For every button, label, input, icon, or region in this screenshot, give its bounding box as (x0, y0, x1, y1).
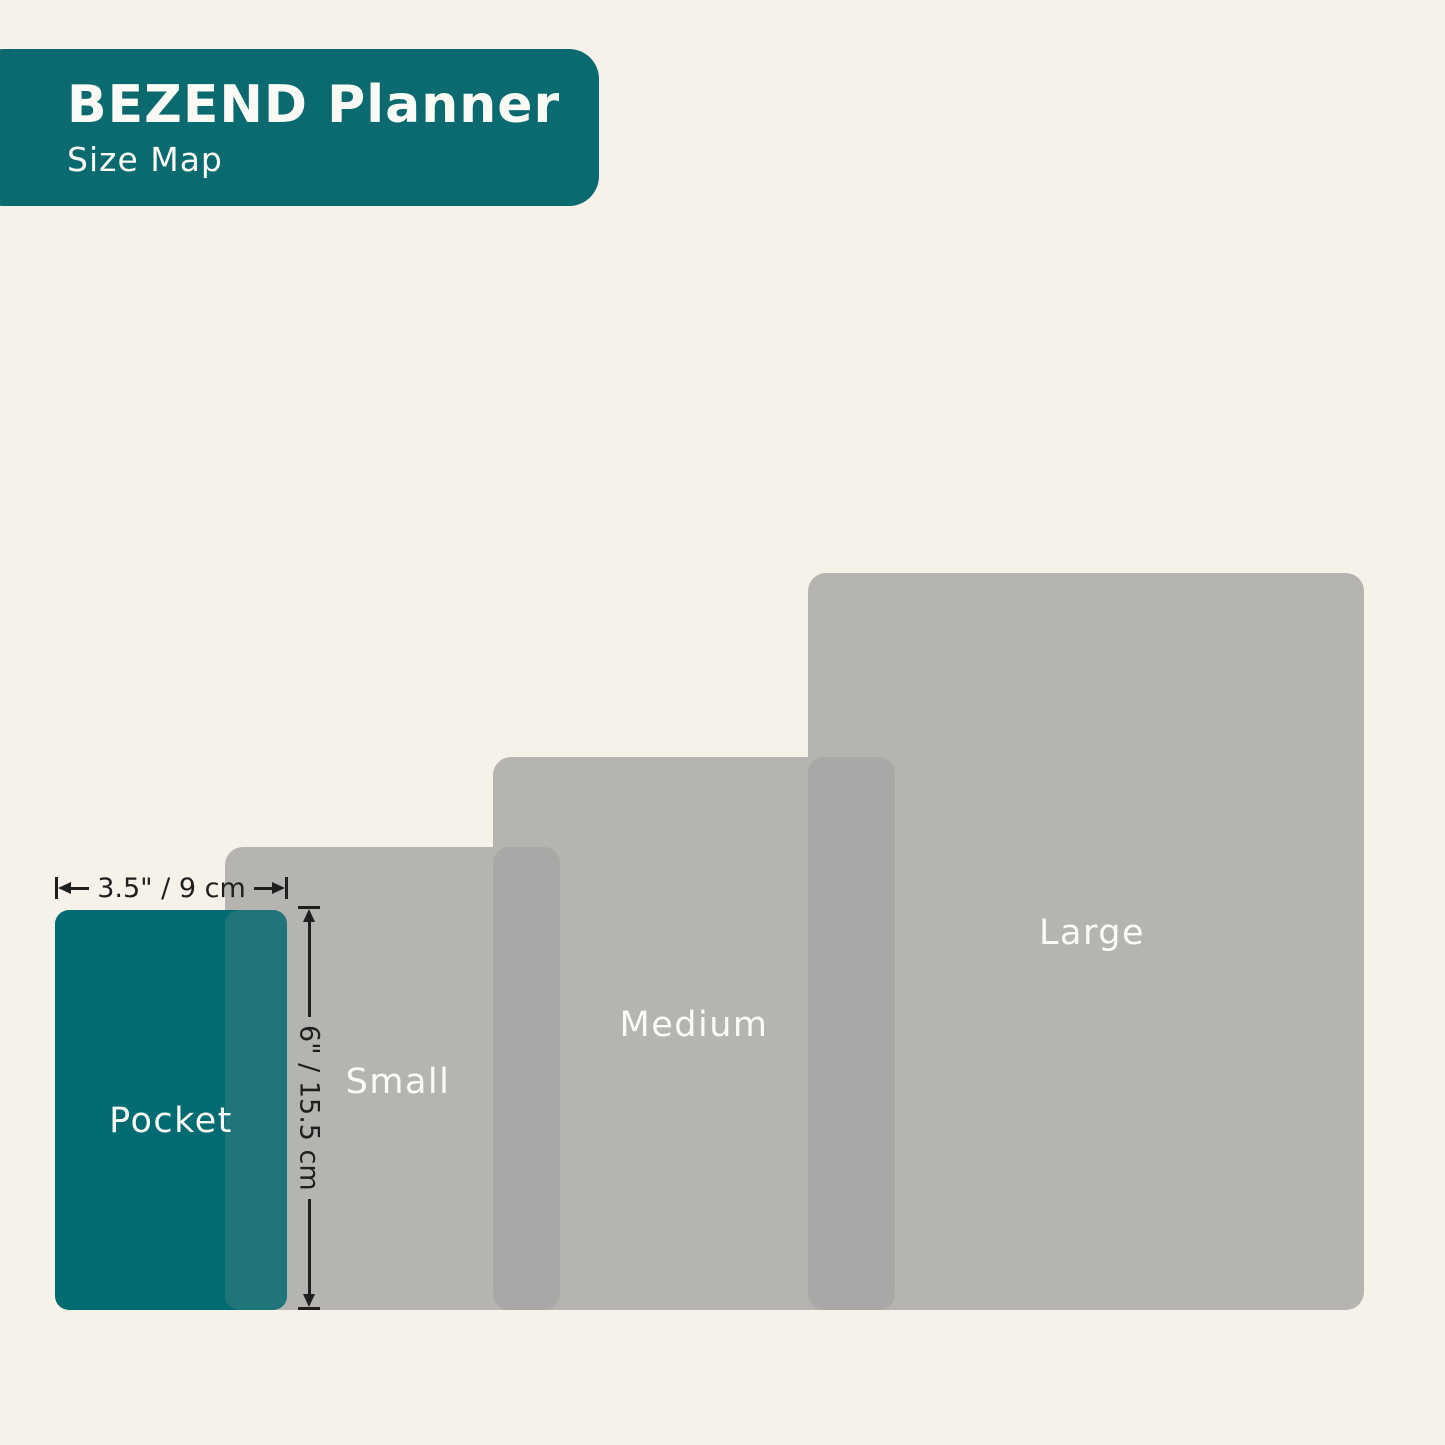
arrow-down-icon (303, 1294, 315, 1307)
dimension-line (308, 922, 311, 1017)
pocket-small-overlap-band (225, 910, 287, 1310)
arrow-up-icon (303, 909, 315, 922)
arrow-left-icon (58, 882, 71, 894)
pocket-width-value: 3.5" / 9 cm (89, 875, 254, 902)
dimension-line (254, 887, 272, 890)
pocket-size-label: Pocket (109, 1101, 233, 1141)
pocket-height-dimension: 6" / 15.5 cm (290, 906, 328, 1310)
arrow-right-icon (272, 882, 285, 894)
dimension-tick (298, 1307, 320, 1310)
dimension-line (71, 887, 89, 890)
pocket-height-value: 6" / 15.5 cm (296, 1017, 323, 1199)
large-size-label: Large (1039, 913, 1145, 953)
dimension-tick (285, 877, 288, 899)
page-title: BEZEND Planner (67, 79, 599, 131)
small-medium-overlap-band (493, 847, 560, 1310)
medium-size-label: Medium (620, 1005, 769, 1045)
small-size-label: Small (346, 1062, 451, 1102)
page-subtitle: Size Map (67, 143, 599, 176)
pocket-width-dimension: 3.5" / 9 cm (55, 869, 288, 907)
medium-large-overlap-band (808, 757, 895, 1310)
size-map-canvas: BEZEND Planner Size Map Pocket Small Med… (0, 0, 1445, 1445)
dimension-line (308, 1199, 311, 1294)
header-badge: BEZEND Planner Size Map (0, 49, 599, 206)
